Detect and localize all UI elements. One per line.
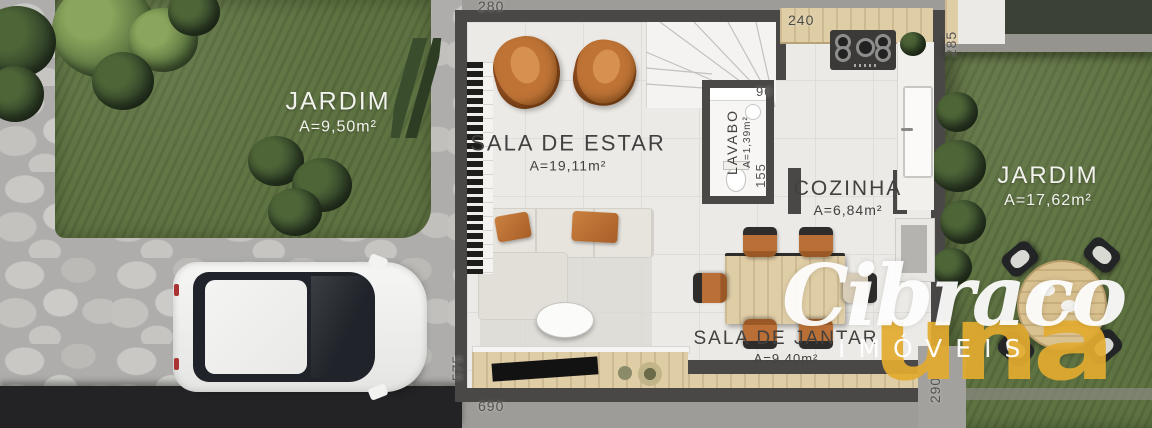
car-top-view [173, 258, 427, 396]
plant [92, 52, 154, 110]
floor-plan-render: JARDIM A=9,50m² [0, 0, 1152, 428]
shrub [268, 188, 322, 236]
dining-chair [843, 273, 877, 303]
dimension-label: 575 [449, 355, 465, 381]
dimension-label: 90 [756, 84, 772, 99]
car-taillight [174, 284, 179, 296]
patio-set [995, 240, 1125, 370]
car-windshield-glare [311, 276, 371, 378]
room-area: A=9,40m² [694, 351, 879, 367]
car-taillight [174, 358, 179, 370]
refrigerator [895, 218, 935, 282]
kitchen-plant [900, 32, 926, 56]
plate [1061, 300, 1077, 312]
dining-terrace-strip [688, 374, 931, 388]
room-label-powder-room: LAVABO A=1,39m² [724, 109, 754, 175]
garden-right-top-shadow [1005, 0, 1152, 34]
room-label-dining-room: SALA DE JANTAR A=9,40m² [694, 327, 879, 367]
car-roof [205, 280, 307, 374]
dining-chair [743, 227, 777, 257]
burner-center [856, 38, 875, 57]
kitchen-sink [903, 86, 933, 178]
dining-chair [693, 273, 727, 303]
room-name: SALA DE ESTAR [470, 130, 666, 158]
planter-pot [618, 366, 632, 380]
stove [830, 30, 896, 70]
room-label-garden-right: JARDIM A=17,62m² [997, 161, 1098, 211]
room-area: A=6,84m² [794, 202, 903, 220]
coffee-table [536, 302, 594, 338]
room-name: SALA DE JANTAR [694, 327, 879, 351]
plate [1039, 284, 1055, 296]
room-name: COZINHA [794, 176, 903, 202]
wall-top [455, 10, 785, 22]
room-label-kitchen: COZINHA A=6,84m² [794, 176, 903, 220]
dimension-label: 690 [478, 398, 504, 414]
room-name: LAVABO [724, 109, 742, 175]
wall-left [455, 10, 467, 402]
room-area: A=19,11m² [470, 157, 666, 175]
planter-pot [638, 362, 662, 386]
plant [932, 248, 972, 286]
dimension-label: 240 [788, 12, 814, 28]
burner [835, 46, 851, 62]
room-area: A=17,62m² [997, 191, 1098, 211]
dimension-label: 285 [943, 31, 959, 57]
faucet [901, 128, 913, 131]
room-label-living-room: SALA DE ESTAR A=19,11m² [470, 130, 666, 175]
burner [875, 46, 891, 62]
plant [940, 200, 986, 244]
garden-path-band [966, 388, 1152, 400]
dimension-label: 280 [478, 0, 504, 14]
dining-chair [799, 227, 833, 257]
room-label-garden-left: JARDIM A=9,50m² [285, 86, 390, 137]
plant [936, 92, 978, 132]
room-name: JARDIM [285, 86, 390, 117]
fridge-door [901, 225, 927, 273]
room-name: JARDIM [997, 161, 1098, 191]
dining-table [725, 253, 845, 324]
dimension-label: 290 [927, 377, 943, 403]
sofa-pillow [571, 211, 619, 243]
wall-bottom [455, 388, 947, 402]
dimension-label: 155 [753, 163, 768, 188]
plant [930, 140, 986, 192]
room-area: A=9,50m² [285, 118, 390, 138]
stove-knobs [854, 64, 876, 67]
